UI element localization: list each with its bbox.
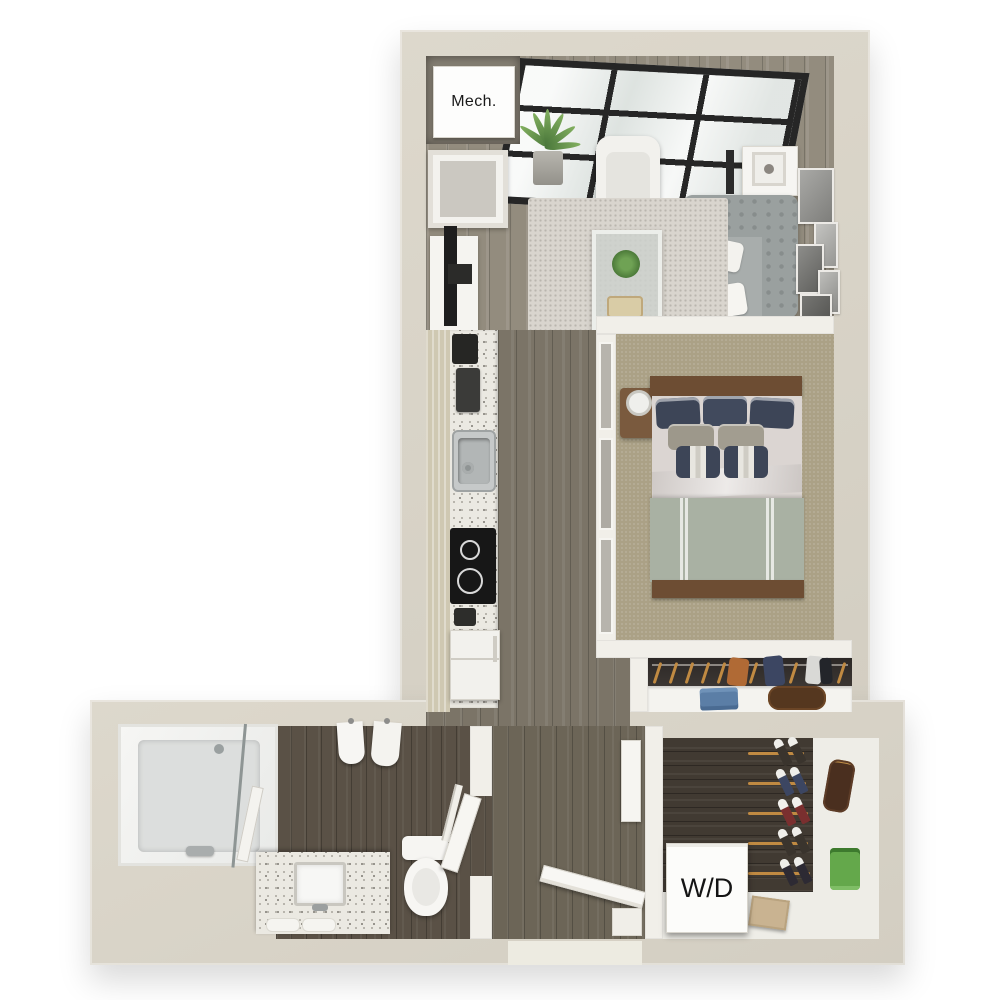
table-lamp-finial — [764, 164, 774, 174]
refrigerator-handle — [493, 636, 497, 662]
laundry-door — [621, 740, 641, 822]
entry-door-jamb — [612, 908, 642, 936]
vanity-faucet — [312, 904, 328, 911]
floor-plan-canvas: Mech. — [0, 0, 1000, 1000]
entry-threshold — [508, 941, 642, 965]
coffee-maker — [456, 368, 480, 412]
kitchen-faucet — [462, 462, 474, 474]
corridor-floor-patch — [596, 658, 630, 726]
wall-entry-laundry — [645, 726, 663, 939]
sliding-door-panel — [599, 342, 613, 430]
vanity-sink — [294, 862, 346, 906]
pillow-accent-striped — [724, 446, 768, 478]
tub-faucet — [186, 846, 214, 856]
refrigerator-divider — [451, 658, 499, 660]
bed-blanket-stripe — [766, 498, 774, 582]
mech-label: Mech. — [451, 93, 497, 111]
bed-headboard — [650, 376, 802, 396]
hand-towel — [370, 721, 402, 767]
folded-jeans — [700, 687, 739, 710]
cooktop-burner — [457, 568, 483, 594]
console-table-top — [440, 161, 496, 217]
kitchen-sink-basin — [458, 438, 490, 484]
bed-blanket-stripe — [680, 498, 688, 582]
hanging-garment — [819, 658, 833, 685]
plant-pot — [533, 151, 563, 185]
hand-towel — [337, 721, 366, 765]
sliding-door-panel — [599, 538, 613, 634]
pillow-navy — [703, 396, 747, 426]
towel-hook — [348, 718, 354, 724]
wall-living-bedroom — [596, 316, 834, 334]
cooktop-burner — [460, 540, 480, 560]
nightstand-lamp — [626, 390, 652, 416]
coffee-table-tray — [607, 296, 643, 318]
rolled-towel — [266, 918, 300, 932]
kitchen-small-appliance — [452, 334, 478, 364]
gallery-frame — [798, 168, 834, 224]
folded-shirt-green — [830, 848, 860, 890]
kitchen-utensils — [454, 608, 476, 626]
washer-dryer-unit: W/D — [666, 843, 748, 933]
kitchen-backsplash-ledge — [426, 330, 450, 712]
towel-hook — [384, 718, 390, 724]
bed-footboard — [652, 580, 804, 598]
mech-closet-door: Mech. — [433, 66, 515, 138]
sliding-door-panel — [599, 438, 613, 530]
sofa-back-right — [762, 195, 798, 318]
storage-box — [748, 896, 790, 931]
wd-label: W/D — [681, 873, 733, 904]
floor-lamp — [726, 150, 734, 194]
hanging-garment — [726, 657, 749, 687]
bed-blanket — [650, 498, 804, 582]
pillow-accent-striped — [676, 446, 720, 478]
shower-head — [214, 744, 224, 754]
rolled-towel — [302, 918, 336, 932]
closet-left-wall — [630, 658, 648, 712]
toilet-seat — [412, 868, 440, 906]
tv-bracket — [448, 264, 472, 284]
coffee-table-plant — [612, 250, 640, 278]
hanging-garment — [762, 655, 785, 687]
duffel-bag — [768, 686, 826, 710]
